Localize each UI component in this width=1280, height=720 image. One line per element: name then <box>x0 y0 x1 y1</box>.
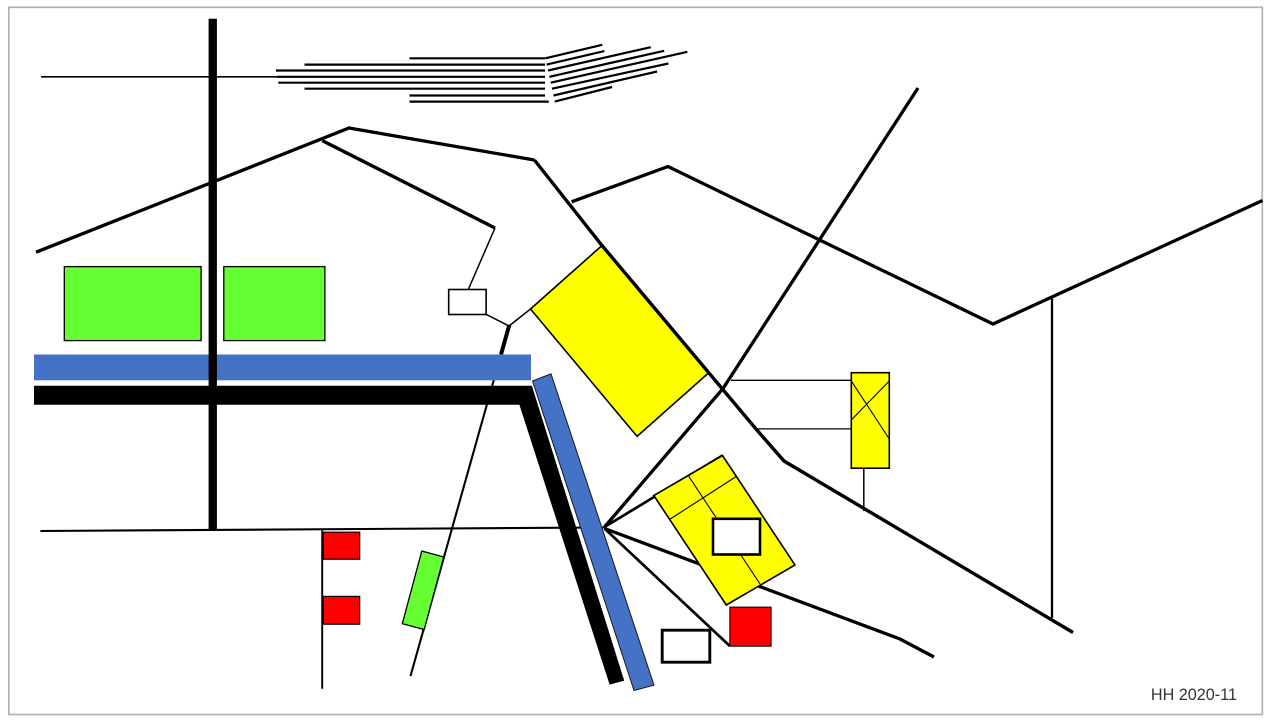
svg-text:HH 2020-11: HH 2020-11 <box>1151 686 1237 704</box>
